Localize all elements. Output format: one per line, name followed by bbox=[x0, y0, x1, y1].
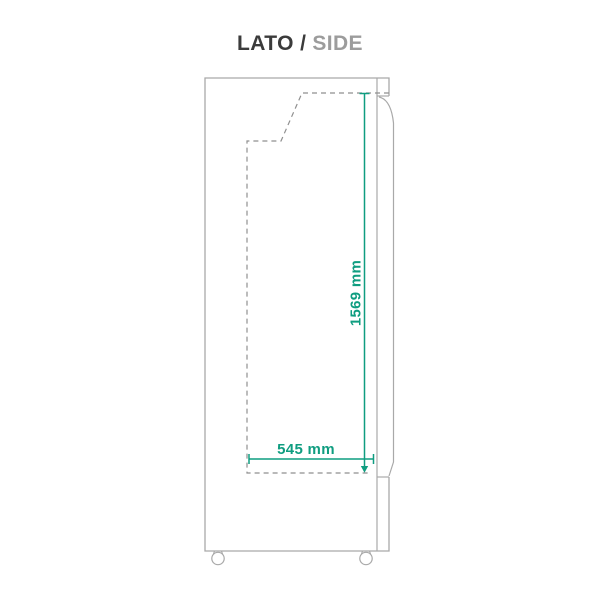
caster-left-wheel bbox=[212, 552, 224, 564]
height-dimension-bottom-arrow bbox=[361, 466, 368, 473]
caster-right-icon bbox=[360, 551, 372, 565]
caster-right-wheel bbox=[360, 552, 372, 564]
height-dimension-label: 1569 mm bbox=[349, 260, 364, 326]
depth-dimension-label: 545 mm bbox=[277, 442, 335, 457]
caster-left-icon bbox=[212, 551, 224, 565]
page: LATO /SIDE bbox=[0, 0, 600, 600]
door-outline bbox=[379, 97, 394, 476]
side-view-diagram bbox=[0, 0, 600, 600]
interior-dashed-outline bbox=[247, 93, 389, 473]
